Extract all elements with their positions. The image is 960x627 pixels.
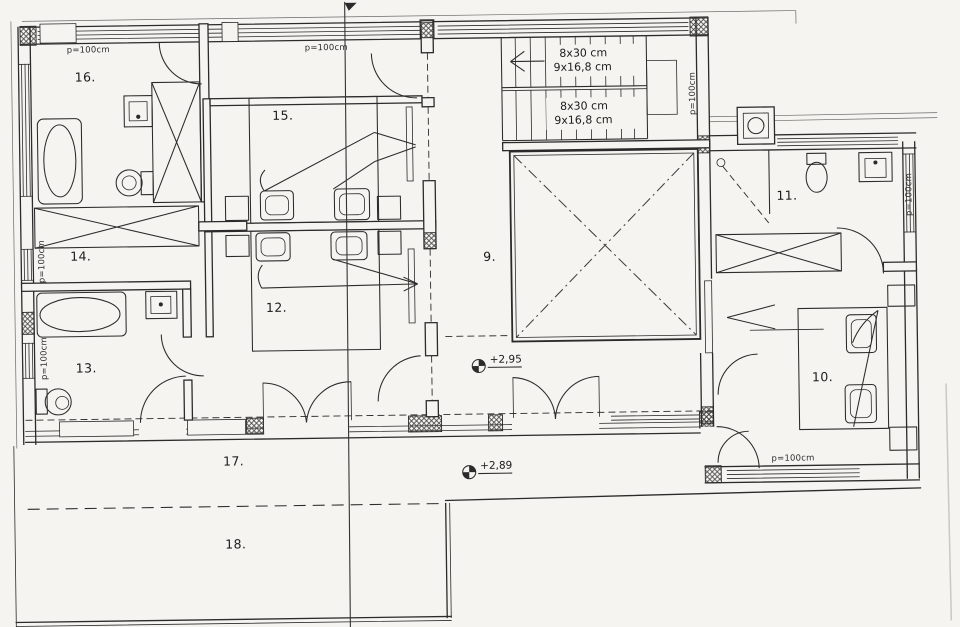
room-label-9: 9. xyxy=(483,249,496,264)
chimney xyxy=(737,107,775,145)
room-label-15: 15. xyxy=(272,108,293,123)
wall-hatch xyxy=(246,418,263,434)
room-label-17: 17. xyxy=(223,453,244,468)
window-pier xyxy=(40,24,76,44)
wall-hatch xyxy=(705,466,721,483)
parapet-label: p=100cm xyxy=(37,240,48,283)
room-label-14: 14. xyxy=(70,248,91,263)
room-label-12: 12. xyxy=(266,300,287,315)
wall-hatch xyxy=(22,312,34,334)
sliding-door-panel xyxy=(705,281,713,353)
parapet-label: p=100cm xyxy=(39,337,50,380)
floor-plan-drawing: 8x30 cm 9x16,8 cm 8x30 cm 9x16,8 cm xyxy=(0,0,960,627)
paper-background xyxy=(0,0,960,627)
window-sill xyxy=(59,421,133,437)
stair-annotation: 8x30 cm xyxy=(559,46,607,60)
wall-hatch xyxy=(408,416,441,432)
wall-hatch xyxy=(488,415,502,431)
room-label-10: 10. xyxy=(812,369,833,384)
parapet-label: p=100cm xyxy=(771,453,814,464)
parapet-label: p=100cm xyxy=(305,43,348,54)
opening xyxy=(701,427,716,465)
wall-hatch xyxy=(20,26,36,45)
room-label-16: 16. xyxy=(75,69,96,84)
room-label-18: 18. xyxy=(225,536,246,551)
wall-hatch xyxy=(701,407,713,424)
parapet-label: p=100cm xyxy=(688,72,699,115)
room-label-11: 11. xyxy=(776,188,797,203)
stair-annotation: 9x16,8 cm xyxy=(554,113,612,127)
elevation-value: +2,89 xyxy=(480,460,512,472)
window-sill xyxy=(187,419,245,435)
window-pier xyxy=(222,22,238,41)
stair-annotation: 8x30 cm xyxy=(560,99,608,113)
room-label-13: 13. xyxy=(76,360,97,375)
wall-hatch xyxy=(690,17,708,36)
parapet-label: p=100cm xyxy=(67,45,110,56)
elevation-value: +2,95 xyxy=(490,353,522,365)
stair-annotation: 9x16,8 cm xyxy=(553,60,611,74)
parapet-label: p=100cm xyxy=(904,173,915,216)
